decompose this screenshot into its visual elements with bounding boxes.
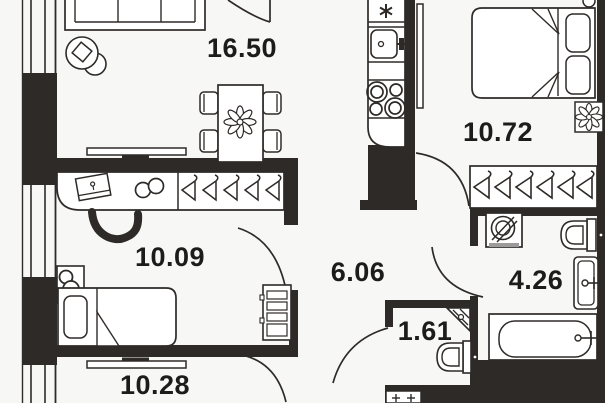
living-room-area-label: 16.50 — [207, 33, 277, 63]
kitchen-counter — [367, 0, 409, 147]
pillow — [566, 56, 590, 94]
laptop-icon — [76, 173, 111, 200]
wall-segment — [360, 200, 417, 210]
flower-centerpiece-icon — [224, 106, 256, 138]
dining-chair — [200, 130, 218, 152]
door-panel — [417, 4, 423, 108]
machine-base — [489, 243, 519, 247]
service-shaft — [386, 391, 421, 403]
dining-chair — [200, 92, 218, 114]
bottom-room-area-label: 10.28 — [120, 370, 190, 400]
wall-segment — [470, 210, 478, 246]
bathroom-area-label: 4.26 — [509, 265, 564, 295]
bedroom-area-label: 10.72 — [463, 117, 533, 147]
dining-chair — [263, 130, 281, 152]
small-bedroom-area-label: 10.09 — [135, 242, 205, 272]
bathtub-icon — [489, 314, 597, 360]
toilet-bathroom-icon — [561, 219, 603, 251]
wall-segment — [284, 158, 298, 225]
wall-segment — [22, 277, 57, 365]
wall-segment — [405, 0, 415, 145]
plant-icon — [575, 102, 603, 132]
pillow — [566, 14, 590, 52]
pillow — [64, 296, 87, 338]
floor-plan: 16.50 10.72 10.09 6.06 4.26 1.61 10.28 — [0, 0, 605, 403]
wall-segment — [470, 296, 478, 310]
sofa — [65, 0, 205, 30]
wall-segment — [385, 308, 393, 327]
washing-machine-icon — [486, 213, 522, 247]
desk — [57, 172, 284, 210]
shelf-unit — [260, 285, 291, 340]
floor-plan-svg: 16.50 10.72 10.09 6.06 4.26 1.61 10.28 — [0, 0, 605, 403]
sink-bathroom-icon — [574, 257, 599, 309]
wc-area-label: 1.61 — [398, 316, 453, 346]
wall-segment — [597, 0, 605, 403]
sconce-icon — [583, 0, 595, 7]
wall-segment — [22, 73, 57, 185]
wall-segment — [385, 300, 470, 308]
wall-segment — [470, 360, 605, 403]
single-bed — [58, 288, 176, 346]
wardrobe-bedroom — [470, 166, 597, 208]
hallway-area-label: 6.06 — [331, 257, 386, 287]
double-bed — [472, 8, 595, 98]
dining-chair — [263, 92, 281, 114]
